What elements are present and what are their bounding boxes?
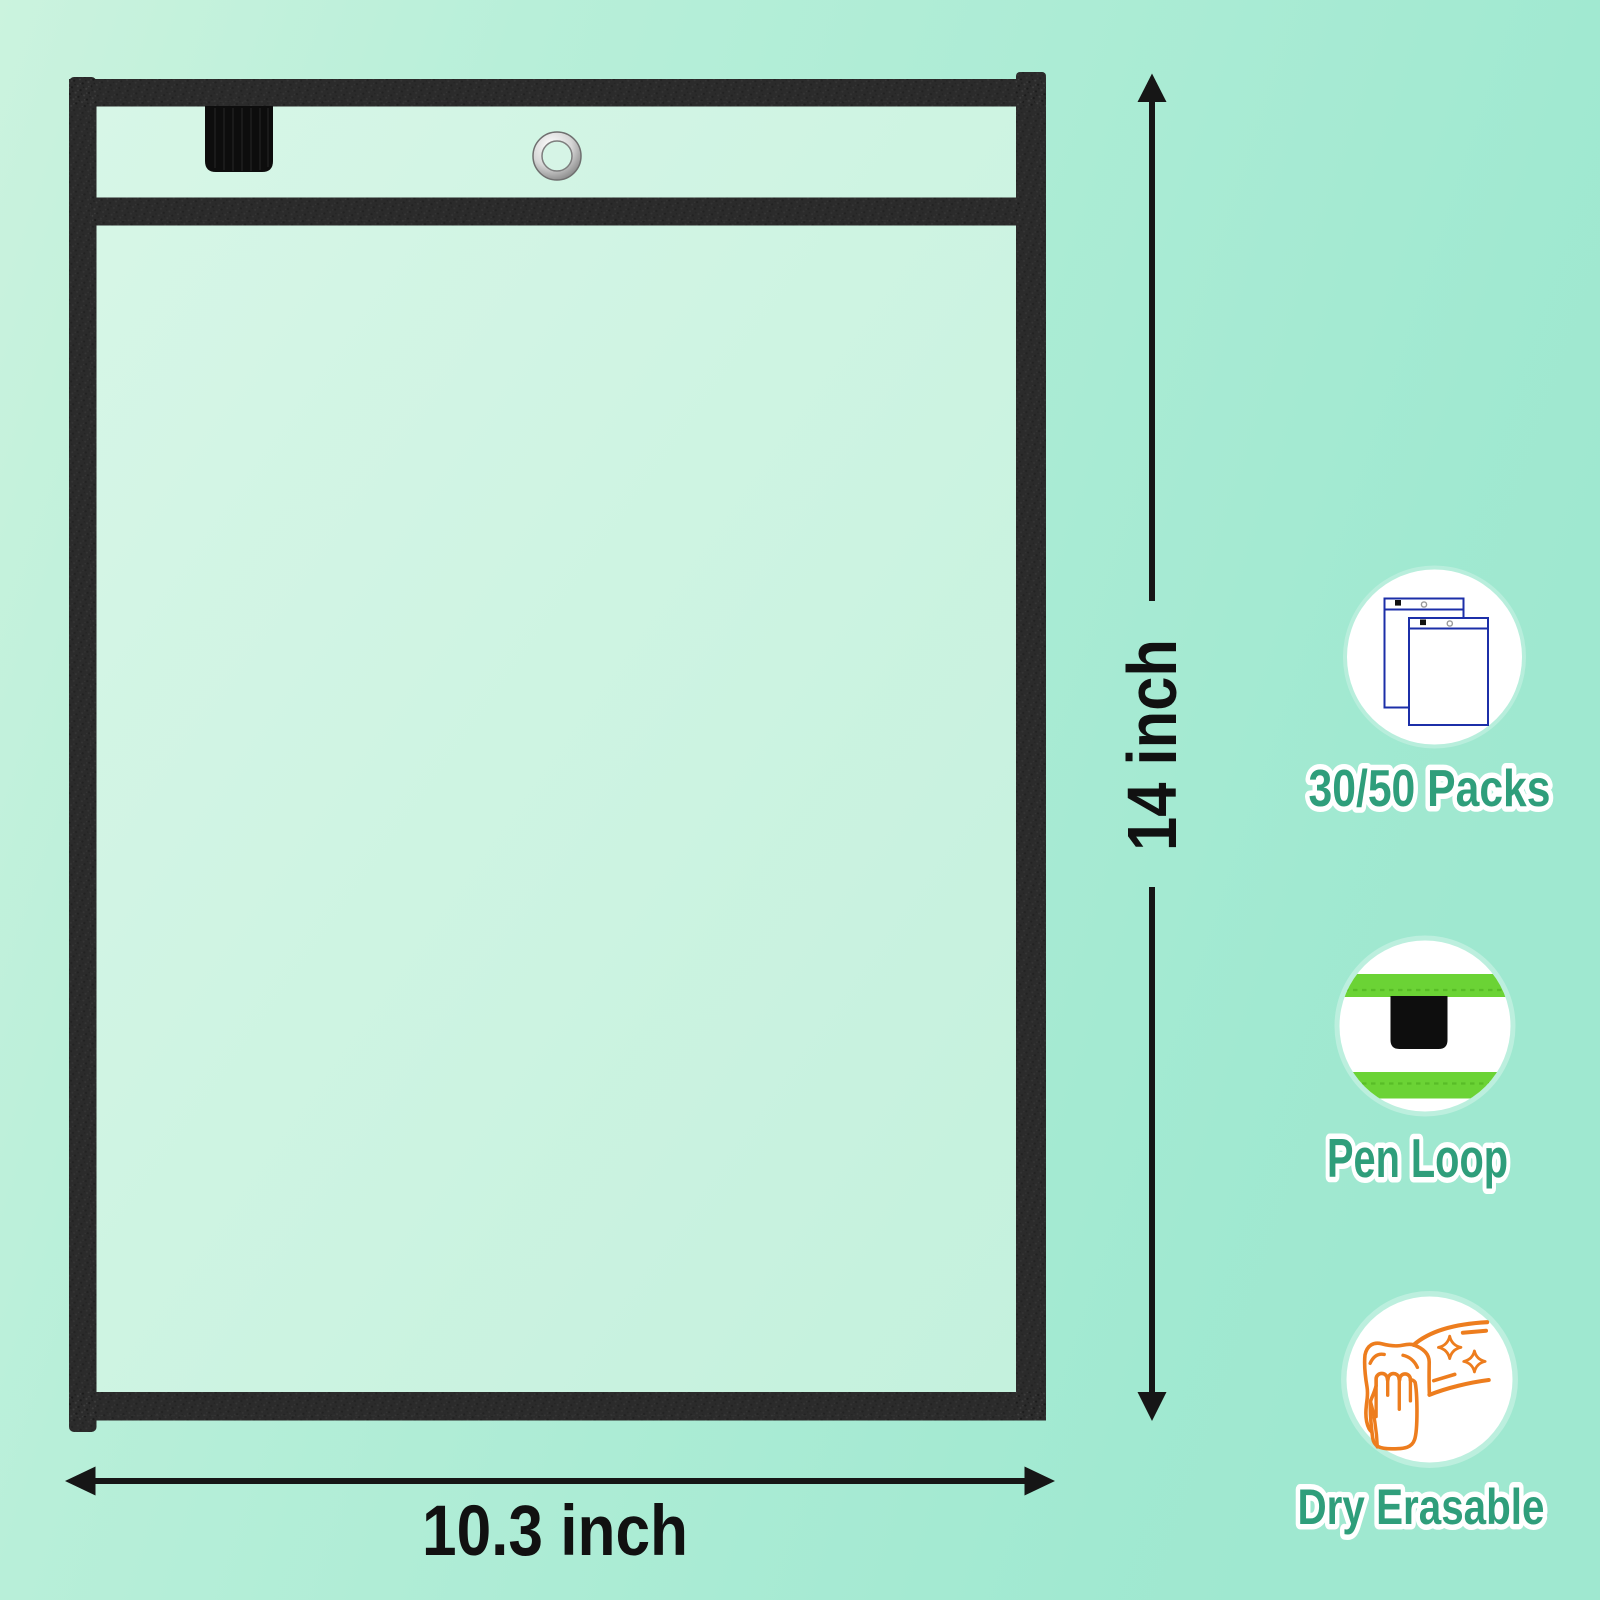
svg-text:Pen Loop: Pen Loop — [1327, 1127, 1508, 1189]
svg-text:Dry Erasable: Dry Erasable — [1298, 1479, 1545, 1535]
svg-text:14 inch: 14 inch — [1113, 639, 1191, 851]
svg-text:30/50 Packs: 30/50 Packs — [1309, 760, 1551, 818]
svg-text:10.3 inch: 10.3 inch — [422, 1492, 688, 1571]
